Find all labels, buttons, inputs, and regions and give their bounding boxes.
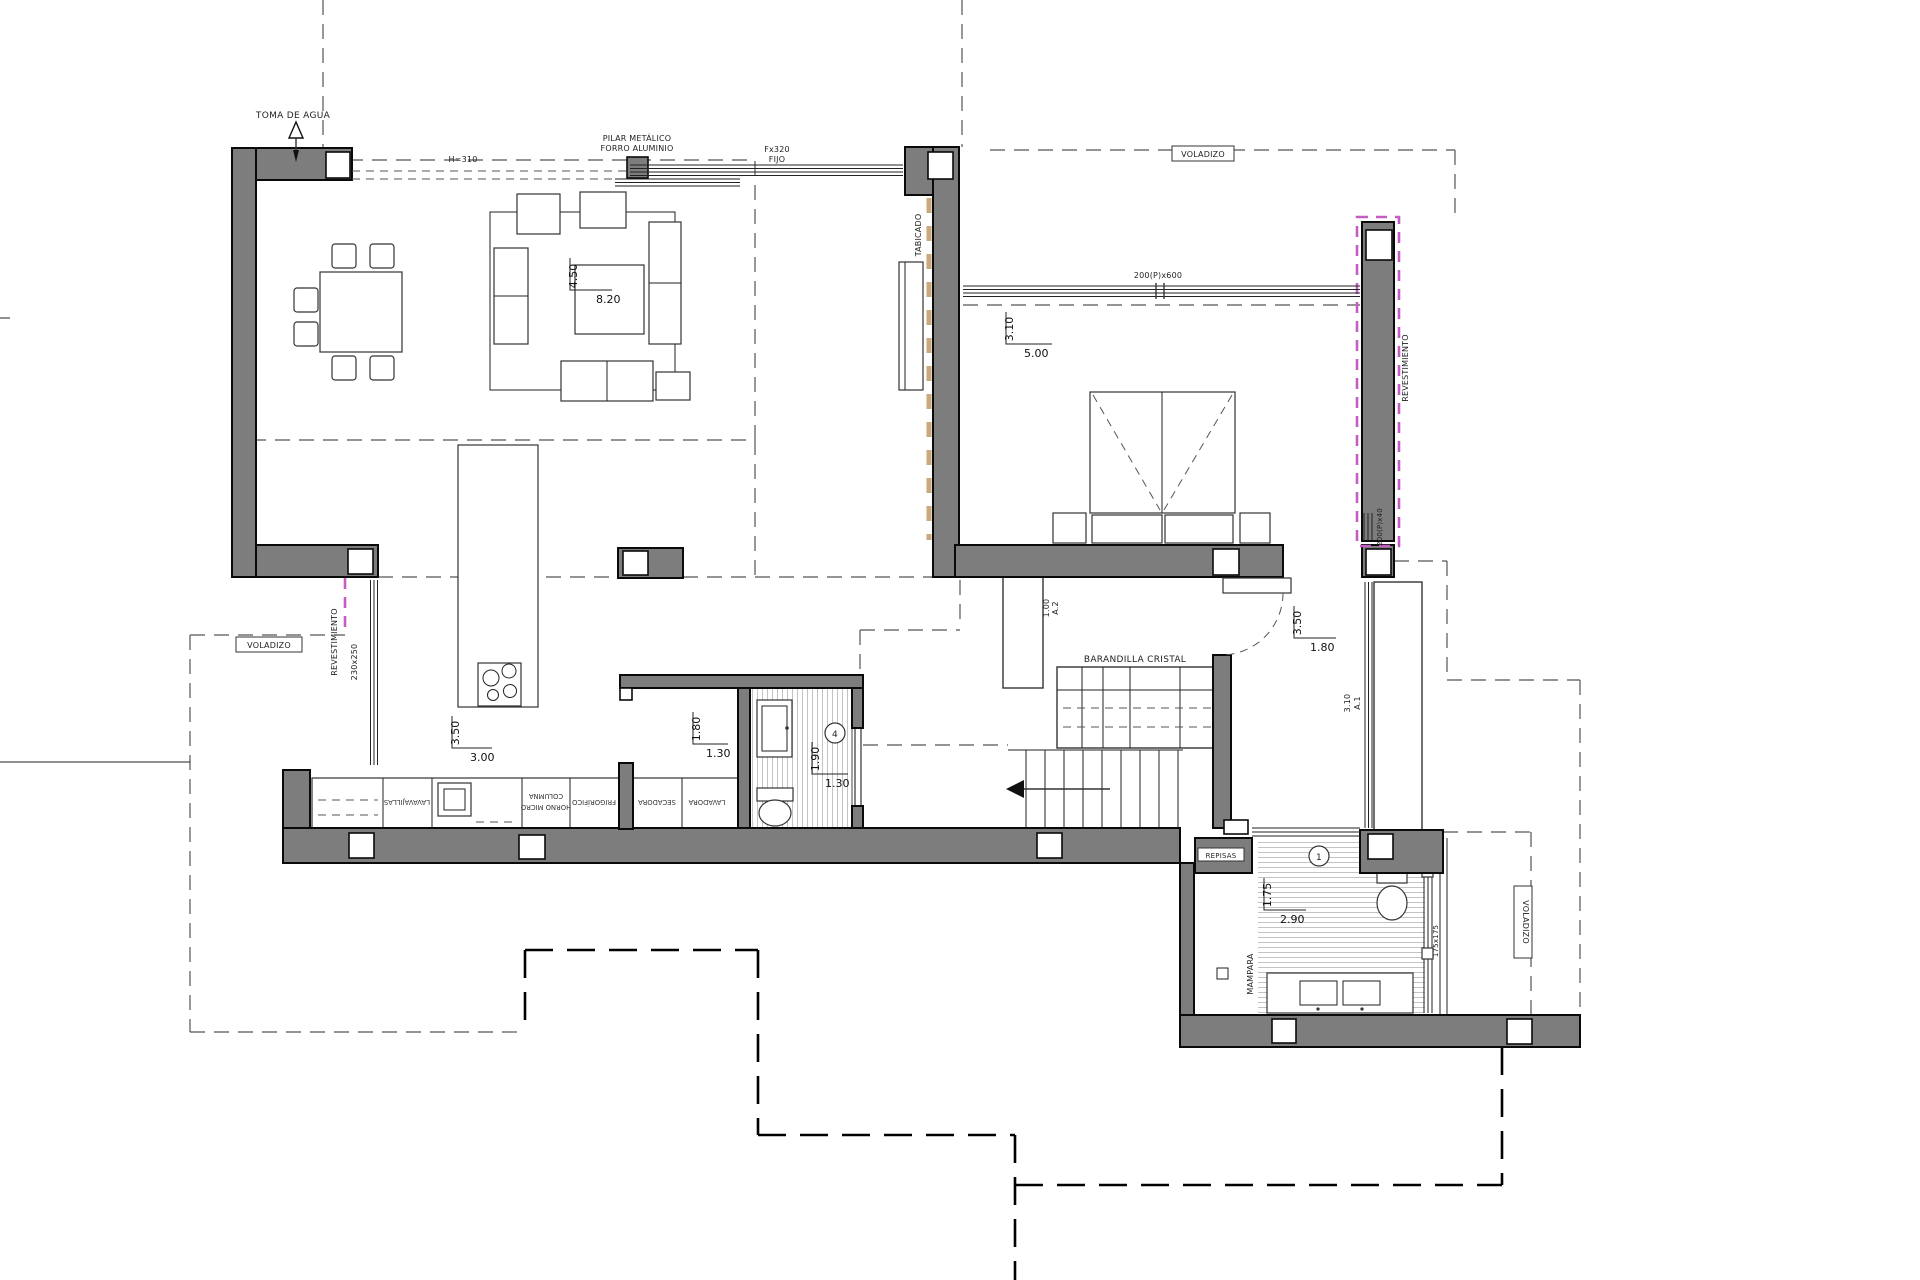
side-table xyxy=(580,192,626,228)
kitchen-counter: LAVAVAJILLAS COLUMNA HORNO MICRO FRIGORÍ… xyxy=(312,778,738,828)
kitchen: LAVAVAJILLAS COLUMNA HORNO MICRO FRIGORÍ… xyxy=(312,445,738,828)
room-4-text: 4 xyxy=(832,730,838,740)
tv-console xyxy=(899,262,923,390)
side-table-2 xyxy=(656,372,690,400)
room-1-text: 1 xyxy=(1316,853,1322,863)
dim-kitchen-a: 3.50 xyxy=(449,721,462,746)
voladizo-top-box: VOLADIZO xyxy=(1172,146,1234,161)
pillar xyxy=(1037,833,1062,858)
dining-table xyxy=(320,272,402,352)
faucet-dot xyxy=(785,726,789,730)
label-tabicado: TABICADO xyxy=(914,214,923,258)
label-toma-de-agua: TOMA DE AGUA xyxy=(255,111,331,121)
label-small-window: 200(P)x40 xyxy=(1376,508,1384,546)
doors xyxy=(1223,578,1291,655)
hall-east-window xyxy=(1365,582,1372,828)
sofa-group xyxy=(490,192,690,401)
dining-chair xyxy=(370,356,394,380)
dining-chair xyxy=(294,322,318,346)
floor-plan-drawing: LAVAVAJILLAS COLUMNA HORNO MICRO FRIGORÍ… xyxy=(0,0,1920,1280)
vanity xyxy=(1267,973,1413,1013)
repisas-box: REPISAS xyxy=(1198,848,1244,861)
room-number-1: 1 xyxy=(1309,846,1329,866)
label-dryer: SECADORA xyxy=(638,798,676,806)
label-voladizo-right: VOLADIZO xyxy=(1521,900,1530,944)
dim-kitchen: 3.50 3.00 xyxy=(449,716,495,764)
label-wardrobe-a2: A.2 xyxy=(1051,601,1060,615)
label-washer: LAVADORA xyxy=(688,798,725,806)
armchair xyxy=(517,194,560,234)
label-window-fixed-1: Fx320 xyxy=(764,145,790,154)
label-bedroom-window: 200(P)x600 xyxy=(1134,271,1182,280)
label-pilar-2: FORRO ALUMINIO xyxy=(601,144,674,153)
dining-chair xyxy=(332,244,356,268)
label-barandilla: BARANDILLA CRISTAL xyxy=(1084,655,1186,665)
wall-laundry-north xyxy=(620,675,863,688)
dining-chair xyxy=(332,356,356,380)
dim-laundry-a: 1.80 xyxy=(690,717,703,742)
label-fridge: FRIGORÍFICO xyxy=(572,798,616,807)
dim-hall-a: 3.50 xyxy=(1291,611,1304,636)
staircase: BARANDILLA CRISTAL xyxy=(1006,655,1213,828)
dim-hall-b: 1.80 xyxy=(1310,641,1335,654)
dim-bedroom: 3.10 5.00 xyxy=(1003,312,1052,360)
label-dishwasher: LAVAVAJILLAS xyxy=(384,798,430,806)
label-beam-height: H=310 xyxy=(449,155,478,164)
wall-stairs-east xyxy=(1213,655,1231,828)
wall-kitchen-west-stub xyxy=(283,770,310,828)
toilet-tank xyxy=(757,788,793,801)
dim-hall: 3.50 1.80 xyxy=(1291,606,1336,654)
toilet-bowl xyxy=(759,800,791,826)
stair-direction-arrow xyxy=(1006,780,1024,798)
dining-chair xyxy=(294,288,318,312)
pillar xyxy=(1366,230,1392,260)
wall-west xyxy=(232,148,256,577)
label-column-oven-2: HORNO MICRO xyxy=(521,803,571,811)
wall-laundry-east xyxy=(738,688,750,828)
bedroom-door-leaf xyxy=(1223,578,1291,593)
dim-bath-small-b: 1.30 xyxy=(825,777,850,790)
pillar xyxy=(326,152,350,178)
label-window-fixed-2: FIJO xyxy=(769,155,785,164)
bedroom xyxy=(1053,392,1270,543)
dim-bath-small-a: 1.90 xyxy=(809,747,822,772)
pillar xyxy=(1224,820,1248,834)
pillar xyxy=(348,549,373,574)
drain-box xyxy=(1217,968,1228,979)
kitchen-west-window xyxy=(371,580,378,765)
dim-kitchen-b: 3.00 xyxy=(470,751,495,764)
label-revestimiento-right: REVESTIMIENTO xyxy=(1401,334,1410,402)
sliding-door-leaf xyxy=(855,728,861,806)
label-pilar-1: PILAR METÁLICO xyxy=(603,132,672,143)
voladizo-right-box: VOLADIZO xyxy=(1514,886,1532,958)
wall-notch xyxy=(620,688,632,700)
toilet-bowl xyxy=(1377,886,1407,920)
dim-living-b: 8.20 xyxy=(596,293,621,306)
pillar xyxy=(1507,1019,1532,1044)
bedroom-top-window xyxy=(963,283,1360,299)
bedroom-door-swing xyxy=(1223,593,1283,655)
label-mampara-size: 175x175 xyxy=(1432,925,1440,957)
dim-laundry-b: 1.30 xyxy=(706,747,731,760)
voladizo-left-box: VOLADIZO xyxy=(236,637,302,652)
faucet-dot xyxy=(1360,1007,1363,1010)
dim-laundry: 1.80 1.30 xyxy=(690,712,731,760)
cooktop-outline xyxy=(478,663,521,706)
pillar xyxy=(349,833,374,858)
bed-bench xyxy=(1165,515,1233,543)
bed-bench xyxy=(1092,515,1162,543)
label-voladizo-top: VOLADIZO xyxy=(1181,150,1225,159)
dim-bath-main-b: 2.90 xyxy=(1280,913,1305,926)
label-repisas: REPISAS xyxy=(1206,852,1237,860)
label-revestimiento-left-size: 230x250 xyxy=(350,644,359,681)
pillar xyxy=(1213,549,1239,575)
cooktop xyxy=(478,663,521,706)
kitchen-sink xyxy=(438,783,471,816)
dim-bedroom-a: 3.10 xyxy=(1003,317,1016,342)
water-intake-arrow-icon xyxy=(289,122,303,138)
pillar xyxy=(928,152,953,179)
toilet-small xyxy=(757,788,793,826)
dim-bath-main-a: 1.75 xyxy=(1261,883,1274,908)
nightstand-left xyxy=(1053,513,1086,543)
dining-chair xyxy=(370,244,394,268)
pillar xyxy=(519,835,545,859)
label-wardrobe-a1: A.1 xyxy=(1353,696,1362,710)
dim-bedroom-b: 5.00 xyxy=(1024,347,1049,360)
dining-table-set xyxy=(294,244,402,380)
label-mampara: MAMPARA xyxy=(1246,953,1255,994)
wall-bath-small-jamb-top xyxy=(852,688,863,728)
wall-laundry-west xyxy=(619,763,633,829)
bath-main-top-track xyxy=(1252,828,1360,836)
wall-bath-main-west xyxy=(1180,863,1194,1015)
label-revestimiento-left: REVESTIMIENTO xyxy=(330,608,339,676)
pillar xyxy=(1366,549,1391,575)
wardrobe-a1 xyxy=(1374,582,1422,830)
pillar xyxy=(1272,1019,1296,1043)
nightstand-right xyxy=(1240,513,1270,543)
dim-living-a: 4.50 xyxy=(567,264,580,289)
faucet-dot xyxy=(1316,1007,1319,1010)
room-number-4: 4 xyxy=(825,723,845,743)
label-voladizo-left: VOLADIZO xyxy=(247,641,291,650)
wall-east-clad xyxy=(1362,222,1394,541)
metal-pillar xyxy=(627,157,648,178)
label-column-oven: COLUMNA xyxy=(529,792,563,800)
wall-divider xyxy=(933,147,959,577)
glass-railing xyxy=(1057,667,1213,748)
pillar xyxy=(623,551,648,575)
label-wardrobe-a1-size: 3.10 xyxy=(1343,694,1352,713)
label-wardrobe-a2-size: 1.00 xyxy=(1042,599,1051,618)
toilet-main xyxy=(1377,871,1407,920)
pillar xyxy=(1368,834,1393,859)
floor-plan-page: LAVAVAJILLAS COLUMNA HORNO MICRO FRIGORÍ… xyxy=(0,0,1920,1280)
wall-bath-small-jamb-bottom xyxy=(852,806,863,828)
